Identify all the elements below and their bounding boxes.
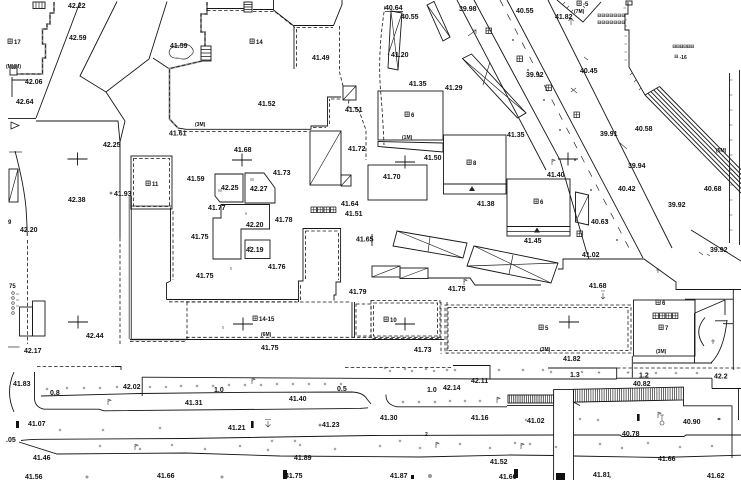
svg-text:39.94: 39.94 — [628, 163, 646, 170]
svg-text:41.31: 41.31 — [185, 400, 203, 407]
svg-text:42.11: 42.11 — [471, 378, 488, 385]
svg-text:42.17: 42.17 — [24, 348, 42, 355]
svg-text:41.73: 41.73 — [273, 170, 291, 177]
svg-text:42.06: 42.06 — [25, 79, 43, 86]
svg-text:39.91: 39.91 — [600, 131, 618, 138]
svg-text:41.30: 41.30 — [380, 415, 398, 422]
svg-text:40.78: 40.78 — [622, 431, 640, 438]
svg-text:42.19: 42.19 — [246, 247, 264, 254]
svg-text:41.82: 41.82 — [555, 14, 573, 21]
svg-text:41.66: 41.66 — [499, 474, 517, 480]
svg-text:41.35: 41.35 — [409, 81, 427, 88]
svg-text:41.68: 41.68 — [234, 147, 252, 154]
svg-text:41.66: 41.66 — [658, 456, 676, 463]
svg-text:42.20: 42.20 — [20, 227, 38, 234]
svg-text:41.75: 41.75 — [191, 234, 209, 241]
svg-text:41.81: 41.81 — [593, 472, 611, 479]
svg-text:39.92: 39.92 — [526, 72, 544, 79]
svg-text:(7M): (7M) — [574, 9, 585, 15]
svg-text:2: 2 — [425, 432, 428, 438]
svg-text:41.51: 41.51 — [345, 211, 363, 218]
svg-text:41.45: 41.45 — [524, 238, 542, 245]
svg-text:1.2: 1.2 — [639, 373, 649, 380]
svg-text:(3M): (3M) — [540, 347, 551, 353]
svg-text:0.8: 0.8 — [50, 390, 60, 397]
svg-text:41.49: 41.49 — [312, 55, 330, 62]
svg-text:41.72: 41.72 — [348, 146, 366, 153]
svg-text:41.35: 41.35 — [507, 132, 525, 139]
svg-text:41.20: 41.20 — [391, 52, 409, 59]
svg-text:41.38: 41.38 — [477, 201, 495, 208]
svg-text:40.42: 40.42 — [618, 186, 636, 193]
svg-text:40.58: 40.58 — [635, 126, 653, 133]
svg-text:10: 10 — [390, 318, 397, 324]
svg-text:40.55: 40.55 — [516, 8, 534, 15]
svg-text:17: 17 — [14, 40, 21, 46]
svg-text:41.70: 41.70 — [383, 174, 401, 181]
svg-text:42.02: 42.02 — [123, 384, 141, 391]
svg-text:40.82: 40.82 — [633, 381, 651, 388]
svg-text:41.75: 41.75 — [261, 345, 279, 352]
svg-text:(1M): (1M) — [402, 135, 413, 141]
svg-text:41.02: 41.02 — [582, 252, 600, 259]
svg-text:14-15: 14-15 — [259, 317, 275, 323]
svg-text:42.27: 42.27 — [250, 186, 268, 193]
svg-text:41.56: 41.56 — [25, 474, 43, 480]
svg-text:41.07: 41.07 — [28, 421, 46, 428]
svg-text:41.73: 41.73 — [414, 347, 432, 354]
svg-text:41.59: 41.59 — [187, 176, 205, 183]
svg-text:-5: -5 — [583, 2, 589, 8]
svg-text:41.68: 41.68 — [589, 283, 607, 290]
svg-text:42.44: 42.44 — [86, 333, 104, 340]
svg-text:41.52: 41.52 — [490, 459, 508, 466]
svg-text:42.59: 42.59 — [69, 35, 87, 42]
svg-text:39.98: 39.98 — [459, 6, 477, 13]
svg-text:41.40: 41.40 — [547, 172, 565, 179]
svg-text:39.92: 39.92 — [668, 202, 686, 209]
svg-text:41.79: 41.79 — [349, 289, 367, 296]
svg-text:42.14: 42.14 — [443, 385, 461, 392]
svg-text:42.38: 42.38 — [68, 197, 86, 204]
svg-text:41.66: 41.66 — [157, 473, 175, 480]
svg-text:42.64: 42.64 — [16, 99, 34, 106]
svg-text:(3M): (3M) — [656, 349, 667, 355]
svg-text:42.25: 42.25 — [103, 142, 121, 149]
svg-text:.05: .05 — [6, 437, 16, 444]
svg-text:39.92: 39.92 — [710, 247, 728, 254]
svg-text:40.55: 40.55 — [401, 14, 419, 21]
svg-text:41.52: 41.52 — [258, 101, 276, 108]
svg-text:41.75: 41.75 — [285, 473, 303, 480]
svg-text:42.25: 42.25 — [221, 185, 239, 192]
svg-text:41.21: 41.21 — [228, 425, 246, 432]
svg-text:14: 14 — [256, 40, 263, 46]
svg-text:41.61: 41.61 — [169, 131, 187, 138]
svg-text:1.0: 1.0 — [427, 387, 437, 394]
svg-text:75: 75 — [9, 284, 16, 290]
svg-text:41.64: 41.64 — [341, 201, 359, 208]
svg-text:41.02: 41.02 — [527, 418, 545, 425]
svg-text:41.29: 41.29 — [445, 85, 463, 92]
svg-text:41.75: 41.75 — [196, 273, 214, 280]
svg-text:40.90: 40.90 — [683, 419, 701, 426]
svg-text:40.64: 40.64 — [385, 5, 403, 12]
svg-text:41.46: 41.46 — [33, 455, 51, 462]
svg-text:41.50: 41.50 — [424, 155, 442, 162]
svg-text:41.87: 41.87 — [390, 473, 408, 480]
svg-text:41.78: 41.78 — [275, 217, 293, 224]
svg-text:-16: -16 — [680, 55, 687, 61]
svg-text:40.45: 40.45 — [580, 68, 598, 75]
svg-text:40.68: 40.68 — [704, 186, 722, 193]
svg-text:(3M): (3M) — [195, 122, 206, 128]
svg-text:42.2: 42.2 — [714, 374, 728, 381]
svg-text:41.75: 41.75 — [448, 286, 466, 293]
svg-text:41.51: 41.51 — [345, 107, 363, 114]
svg-text:41.16: 41.16 — [471, 415, 489, 422]
svg-text:41.76: 41.76 — [268, 264, 286, 271]
svg-text:41.23: 41.23 — [322, 422, 340, 429]
svg-text:1.0: 1.0 — [214, 387, 224, 394]
svg-text:41.62: 41.62 — [707, 473, 725, 480]
svg-text:41.89: 41.89 — [294, 455, 312, 462]
svg-text:1.3: 1.3 — [570, 372, 580, 379]
svg-text:41.59: 41.59 — [170, 43, 188, 50]
svg-text:42.20: 42.20 — [246, 222, 264, 229]
svg-text:41.40: 41.40 — [289, 396, 307, 403]
svg-text:41.82: 41.82 — [563, 356, 581, 363]
svg-text:(M)(M): (M)(M) — [6, 64, 21, 70]
svg-text:41.83: 41.83 — [13, 381, 31, 388]
svg-text:41.77: 41.77 — [208, 205, 226, 212]
svg-text:41.65: 41.65 — [356, 237, 374, 244]
svg-text:0.5: 0.5 — [337, 386, 347, 393]
svg-text:41.93: 41.93 — [114, 191, 132, 198]
svg-text:42.22: 42.22 — [68, 3, 86, 10]
svg-text:11: 11 — [152, 182, 159, 188]
